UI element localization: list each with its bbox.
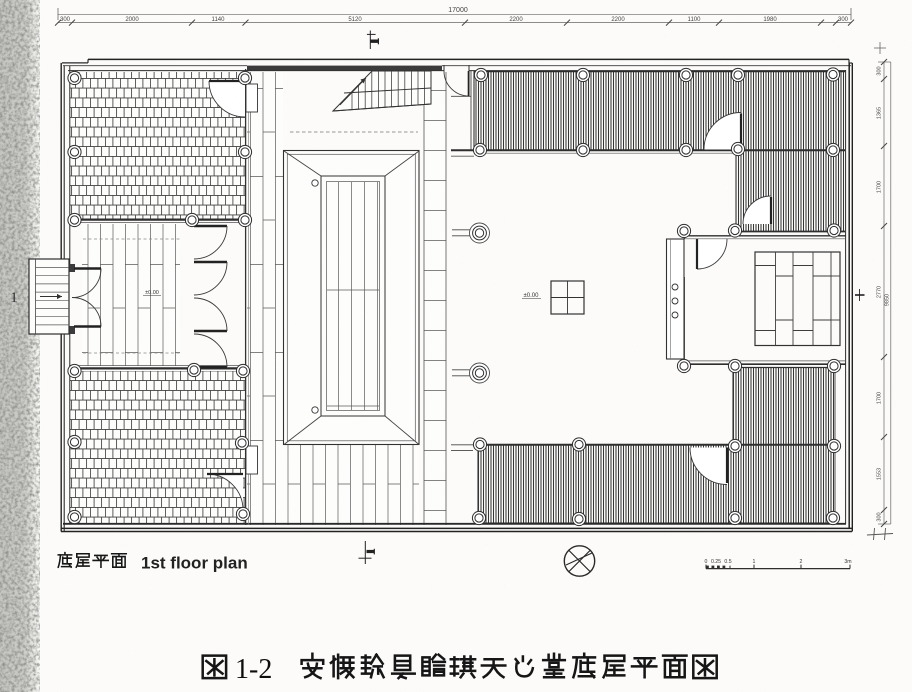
svg-text:1: 1 <box>10 290 18 306</box>
